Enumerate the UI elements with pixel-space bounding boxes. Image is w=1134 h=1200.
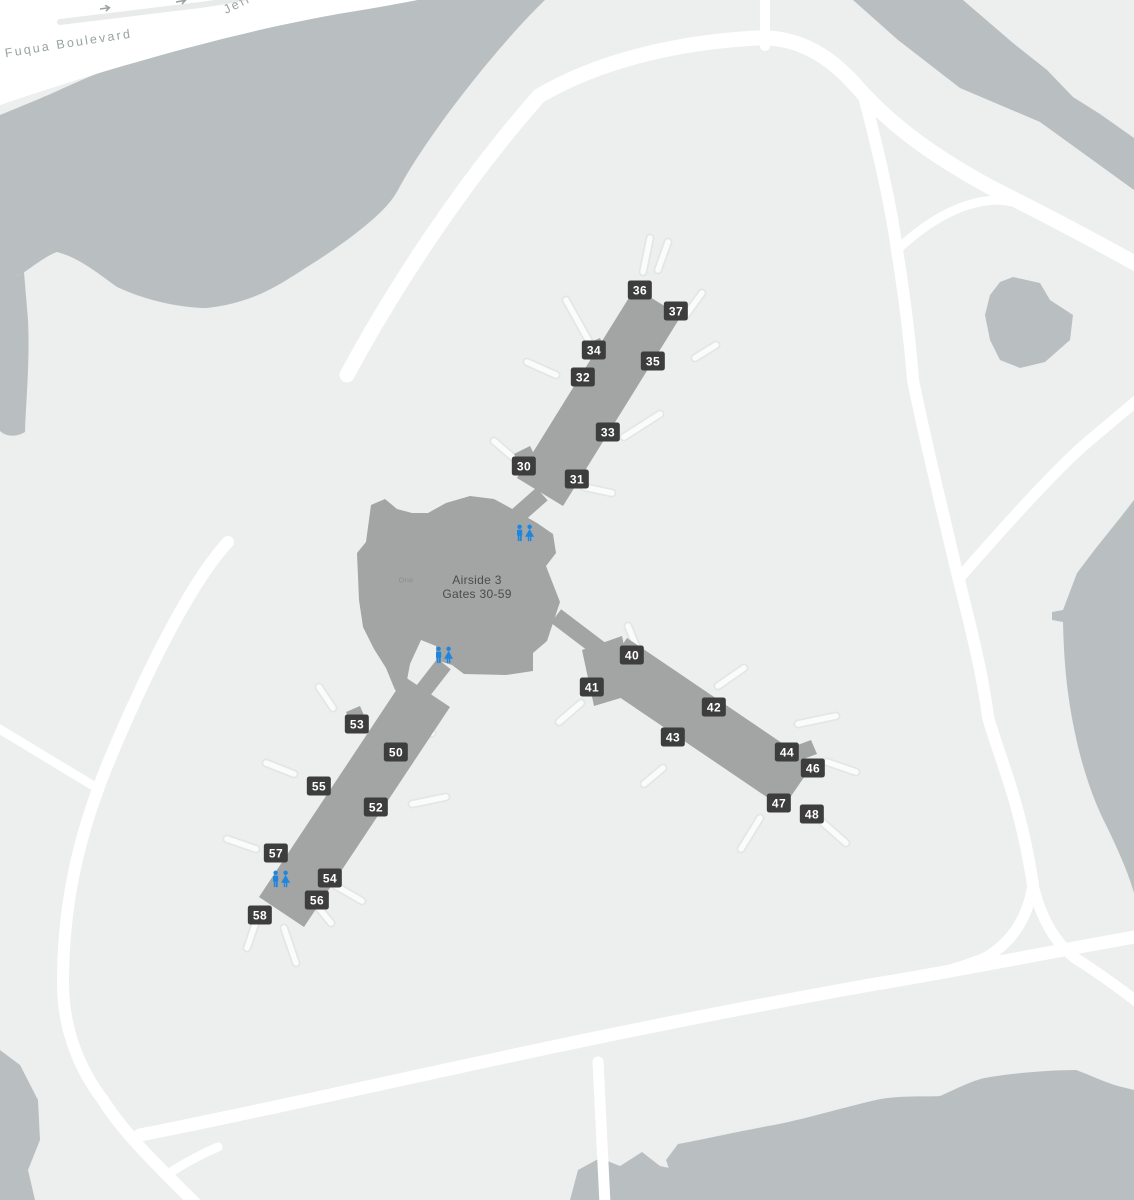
map-viewport[interactable]: Jeff Fuqua Boulevard Jeff Fuqua Boulevar… <box>0 0 1134 1200</box>
water-area-left-tail <box>0 272 29 436</box>
terminal-hub <box>357 496 560 696</box>
road-south-stub <box>598 1062 605 1200</box>
map-canvas[interactable]: Jeff Fuqua Boulevard Jeff Fuqua Boulevar… <box>0 0 1134 1200</box>
